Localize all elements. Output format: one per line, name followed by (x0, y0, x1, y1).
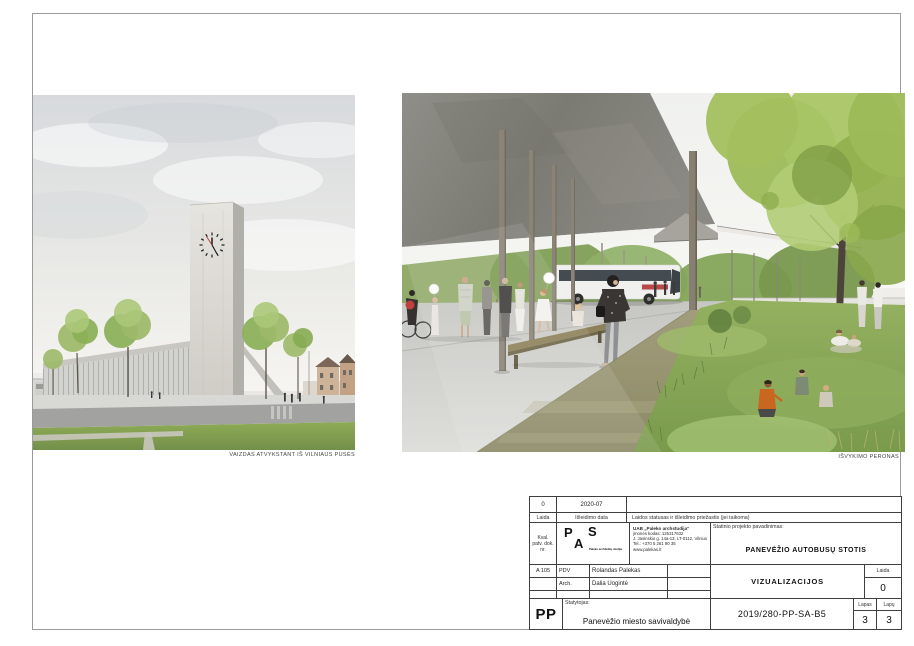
drawing-title: VIZUALIZACIJOS (711, 565, 865, 599)
project-name-label: Statinio projekto pavadinimas: (713, 524, 784, 530)
revision-status-value (627, 497, 901, 513)
revision-number: 0 (530, 497, 557, 513)
signature-cell-1 (668, 565, 711, 578)
architect-studio-logo: P S A Paleko architektų studija (557, 523, 630, 565)
tower-rendering-image (33, 95, 355, 450)
right-view-caption: IŠVYKIMO PERONAS (705, 454, 899, 460)
lapas-label: Lapas (854, 599, 877, 611)
empty-cell-b (530, 591, 557, 599)
client-label: Statytojas: (565, 600, 590, 606)
team-role-2: Arch. (557, 578, 590, 591)
company-web: www.palekas.lt (633, 547, 710, 552)
logo-letter-p: P (564, 525, 573, 540)
lapas-value: 3 (854, 611, 877, 629)
title-block: 0 2020-07 Laida Išleidimo data Laidos st… (529, 496, 902, 630)
left-view-caption: VAIZDAS ATVYKSTANT IŠ VILNIAUS PUSĖS (155, 452, 355, 458)
team-name-2: Dalia Uogintė (590, 578, 668, 591)
qualification-label: Kval. patv. dok. nr. (530, 523, 557, 565)
drawing-sheet: VAIZDAS ATVYKSTANT IŠ VILNIAUS PUSĖS IŠV… (0, 0, 914, 646)
empty-cell-e (668, 591, 711, 599)
empty-cell-d (590, 591, 668, 599)
empty-cell-c (557, 591, 590, 599)
client-cell: Statytojas: Panevėžio miesto savivaldybė (563, 599, 711, 629)
logo-studio-text: Paleko architektų studija (589, 548, 627, 551)
platform-rendering-image (402, 93, 905, 452)
platform-rendering-svg (402, 93, 905, 452)
team-name-1: Rolandas Palekas (590, 565, 668, 578)
laida-label: Laida (530, 513, 557, 523)
logo-letter-s: S (588, 524, 597, 539)
laida2-label: Laida (865, 565, 901, 578)
lapu-label: Lapų (877, 599, 901, 611)
company-info: UAB „Paleko archstudija“ įmonės kodas: 1… (630, 523, 711, 565)
team-role-1: PDV (557, 565, 590, 578)
laida2-value: 0 (865, 578, 901, 599)
signature-cell-2 (668, 578, 711, 591)
qualification-number: A 105 (530, 565, 557, 578)
issue-date: 2020-07 (557, 497, 627, 513)
project-name-cell: Statinio projekto pavadinimas: PANEVĖŽIO… (711, 523, 901, 565)
document-number: 2019/280-PP-SA-B5 (711, 599, 854, 629)
tower-rendering-svg (33, 95, 355, 450)
client-code: PP (530, 599, 563, 629)
logo-letter-a: A (574, 536, 583, 551)
empty-cell-a (530, 578, 557, 591)
issue-date-label: Išleidimo data (557, 513, 627, 523)
status-label: Laidos statusas ir išleidimo priežastis … (627, 513, 901, 523)
ground (33, 395, 355, 450)
lapu-value: 3 (877, 611, 901, 629)
